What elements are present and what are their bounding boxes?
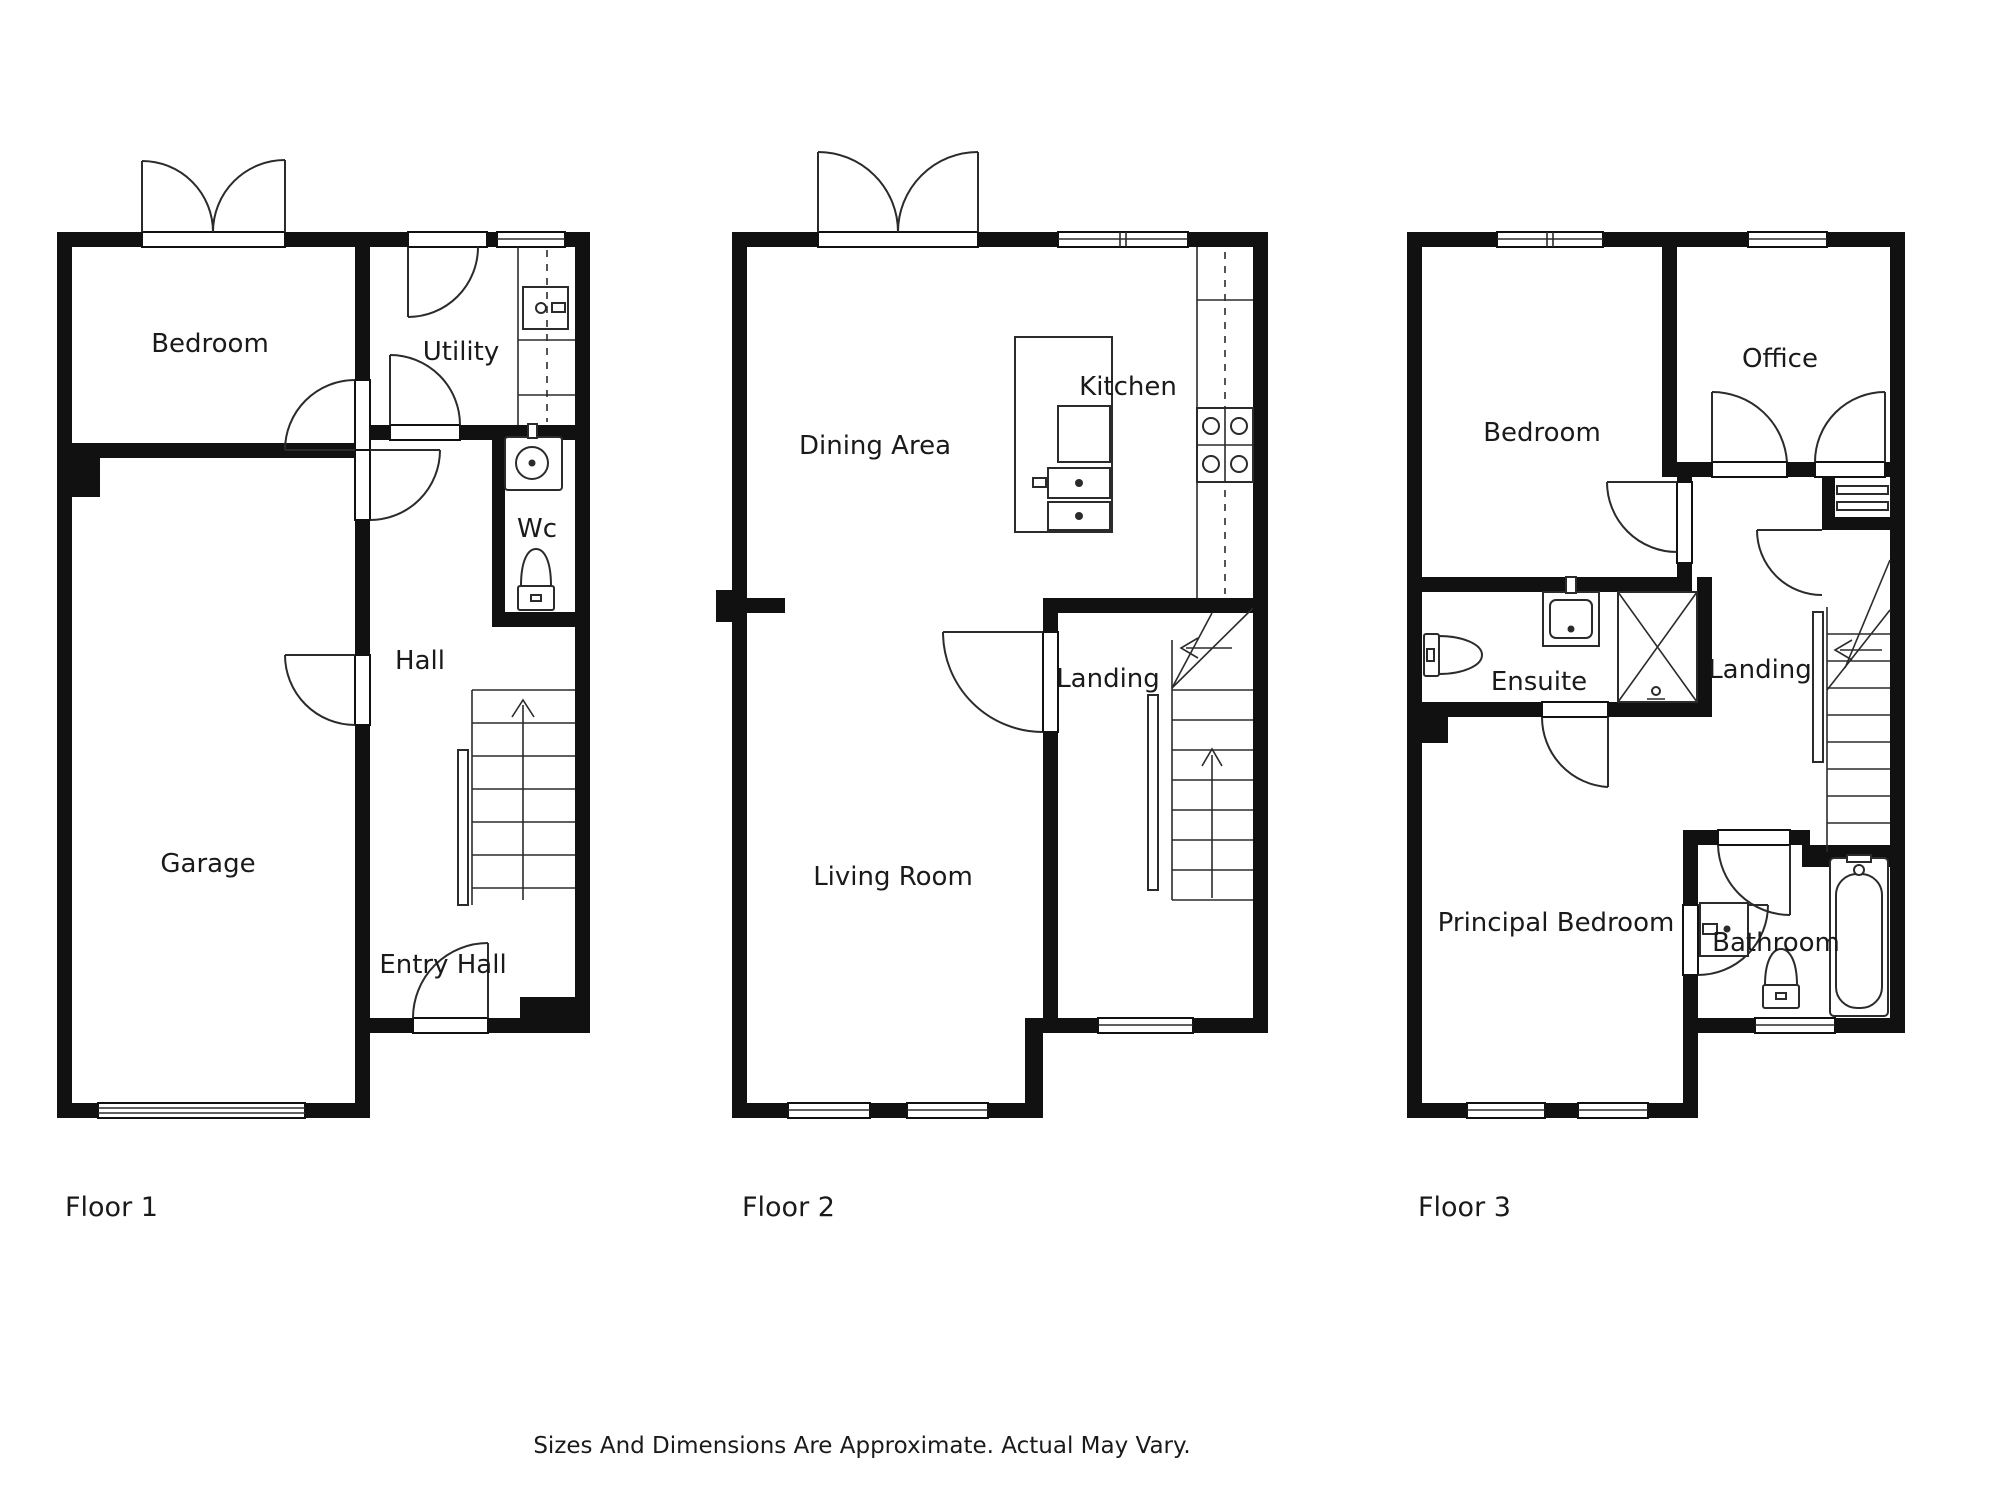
- utility-door-sill: [390, 425, 460, 440]
- kitchen-island: [1015, 337, 1112, 532]
- room-label-office: Office: [1742, 344, 1818, 374]
- disclaimer-text: Sizes And Dimensions Are Approximate. Ac…: [533, 1433, 1190, 1459]
- floor1-label: Floor 1: [65, 1192, 158, 1223]
- principal-window-left: [1467, 1103, 1545, 1118]
- bathroom-window: [1755, 1018, 1835, 1033]
- garage-vehicle-door: [98, 1103, 305, 1118]
- hall-door-sill: [355, 450, 370, 520]
- closet-door-sill: [1815, 462, 1885, 477]
- cupboard-door-arc: [1757, 530, 1822, 595]
- principal-window-right: [1578, 1103, 1648, 1118]
- bedroom-door-sill-f3: [1677, 482, 1692, 563]
- office-window: [1748, 232, 1827, 247]
- floor2-plan: Dining Area Kitchen Landing Living Room …: [716, 152, 1268, 1223]
- principal-door-sill: [1718, 830, 1790, 845]
- living-room-window-left: [788, 1103, 870, 1118]
- floor2-stairs: [1148, 608, 1253, 900]
- utility-ext-door-arc: [408, 247, 478, 317]
- floor1-door-arcs: [142, 160, 488, 1018]
- stairs-up-arrow-icon-f2: [1202, 749, 1222, 898]
- utility-window: [497, 232, 565, 247]
- bedroom-door-arc-f3: [1607, 482, 1677, 552]
- stair-rail: [458, 750, 468, 905]
- room-label-ensuite: Ensuite: [1491, 667, 1587, 697]
- office-door-sill: [1712, 462, 1787, 477]
- living-room-door-arc: [943, 632, 1043, 732]
- bedroom-door-arc: [285, 380, 355, 450]
- shower-icon: [1618, 592, 1697, 702]
- kitchen-window: [1058, 232, 1188, 247]
- bathroom-door-sill: [1683, 905, 1698, 975]
- floor3-plan: Bedroom Office Ensuite Landing Principal…: [1407, 232, 1905, 1223]
- room-label-bathroom: Bathroom: [1712, 928, 1840, 958]
- room-label-entry-hall: Entry Hall: [379, 950, 506, 980]
- bedroom-window-f3: [1497, 232, 1603, 247]
- room-label-principal-bedroom: Principal Bedroom: [1438, 908, 1675, 938]
- floor1-walls: [57, 232, 590, 1118]
- room-label-bedroom-f1: Bedroom: [151, 329, 269, 359]
- utility-ext-door-sill: [408, 232, 487, 247]
- garage-door-arc: [285, 655, 355, 725]
- landing-window-f2: [1098, 1018, 1193, 1033]
- stair-rail-f3: [1813, 612, 1823, 762]
- room-label-living-room: Living Room: [813, 862, 973, 892]
- stairs-up-arrow-icon: [512, 700, 534, 900]
- floor3-stairs: [1813, 560, 1890, 852]
- floorplan-page: Bedroom Utility Wc Hall Garage Entry Hal…: [0, 0, 2000, 1500]
- stairs-turn-arrow-icon-f3: [1835, 640, 1882, 660]
- ensuite-toilet-icon: [1424, 634, 1482, 676]
- room-label-dining-area: Dining Area: [799, 431, 951, 461]
- floor3-label: Floor 3: [1418, 1192, 1511, 1223]
- hall-door-arc: [370, 450, 440, 520]
- washer-icon: [523, 287, 568, 329]
- stair-rail-f2: [1148, 695, 1158, 890]
- ensuite-door-sill: [1542, 702, 1608, 717]
- floor3-closet-shelves: [1837, 486, 1888, 510]
- floor2-label: Floor 2: [742, 1192, 835, 1223]
- french-door-sill-f2: [818, 232, 978, 247]
- room-label-wc: Wc: [517, 514, 557, 544]
- room-label-landing-f2: Landing: [1056, 664, 1160, 694]
- ensuite-door-arc: [1542, 717, 1608, 787]
- floor2-kitchen-fixtures: [1015, 247, 1253, 598]
- room-label-landing-f3: Landing: [1708, 655, 1812, 685]
- room-label-bedroom-f3: Bedroom: [1483, 418, 1601, 448]
- french-door-icon-f2: [818, 152, 978, 232]
- entry-door-sill: [413, 1018, 488, 1033]
- room-label-utility: Utility: [423, 337, 499, 367]
- room-label-hall: Hall: [395, 646, 445, 676]
- room-label-kitchen: Kitchen: [1079, 372, 1177, 402]
- hob-icon: [1197, 408, 1253, 482]
- living-room-window-right: [907, 1103, 988, 1118]
- floorplan-drawing: Bedroom Utility Wc Hall Garage Entry Hal…: [0, 0, 2000, 1500]
- wc-toilet-icon: [518, 549, 554, 610]
- utility-counter: [518, 247, 575, 425]
- french-door-icon: [142, 160, 285, 232]
- office-door-arc: [1712, 392, 1787, 462]
- garage-door-sill: [355, 655, 370, 725]
- bedroom-door-sill: [355, 380, 370, 450]
- room-label-garage: Garage: [160, 849, 255, 879]
- closet-door-arc: [1815, 392, 1885, 462]
- french-door-sill: [142, 232, 285, 247]
- floor1-plan: Bedroom Utility Wc Hall Garage Entry Hal…: [57, 160, 590, 1223]
- floor1-stairs: [458, 690, 575, 905]
